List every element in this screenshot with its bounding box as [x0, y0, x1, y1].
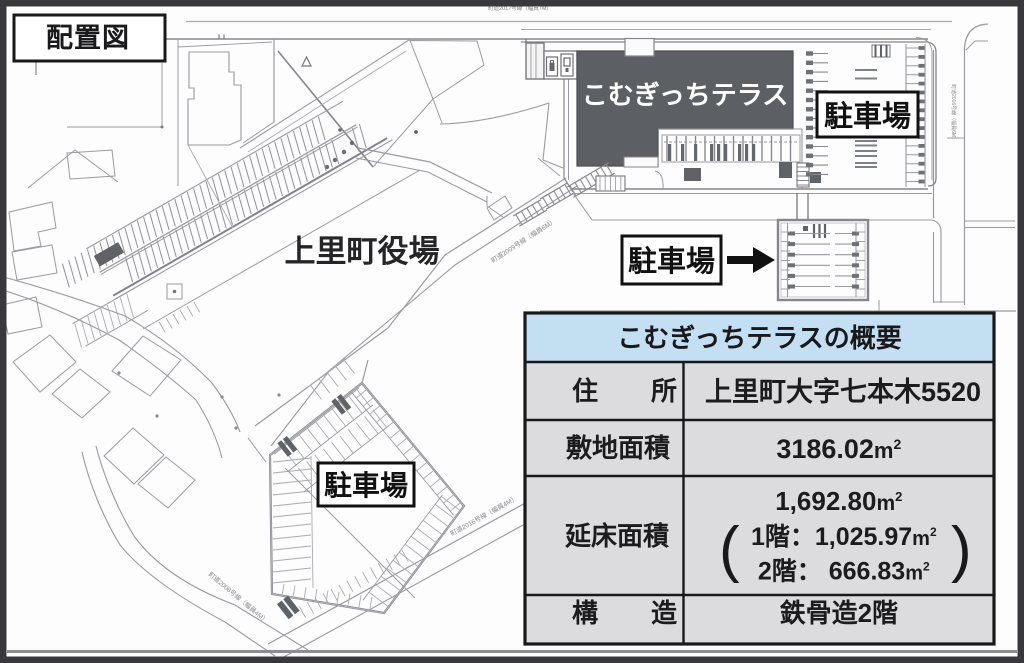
svg-text:駐車場: 駐車場 [324, 470, 408, 501]
svg-text:住: 住 [572, 376, 598, 406]
svg-text:駐車場: 駐車場 [628, 245, 715, 278]
svg-text:町道2016号線（幅員6M）: 町道2016号線（幅員6M） [950, 84, 957, 142]
svg-text:1階：1,025.97m2: 1階：1,025.97m2 [751, 523, 937, 551]
svg-text:構: 構 [572, 598, 598, 628]
svg-text:): ) [951, 515, 972, 584]
svg-text:こむぎっちテラス: こむぎっちテラス [582, 80, 788, 110]
svg-text:(: ( [719, 515, 740, 584]
svg-text:こむぎっちテラスの概要: こむぎっちテラスの概要 [617, 323, 901, 353]
svg-text:敷地面積: 敷地面積 [566, 433, 670, 463]
svg-text:上里町役場: 上里町役場 [285, 234, 440, 269]
svg-text:3186.02m2: 3186.02m2 [776, 434, 901, 464]
svg-text:上里町大字七本木5520: 上里町大字七本木5520 [705, 376, 981, 407]
svg-text:鉄骨造2階: 鉄骨造2階 [780, 598, 898, 628]
svg-text:造: 造 [651, 598, 677, 628]
svg-text:配置図: 配置図 [46, 23, 130, 53]
svg-text:2階： 666.83m2: 2階： 666.83m2 [758, 558, 930, 586]
svg-text:所: 所 [651, 376, 677, 406]
svg-text:駐車場: 駐車場 [824, 100, 911, 133]
svg-text:延床面積: 延床面積 [564, 521, 669, 551]
